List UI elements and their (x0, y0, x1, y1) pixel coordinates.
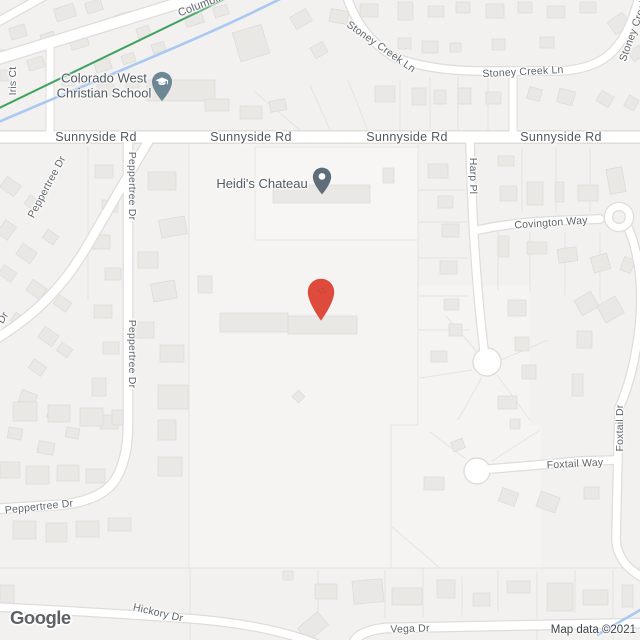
covington-loop (609, 207, 630, 228)
school-pin-icon[interactable] (151, 71, 173, 107)
road-label-iris-ct: Iris Ct (7, 67, 19, 96)
road-label-sunnyside-2: Sunnyside Rd (210, 130, 291, 144)
road-label-peppertree-v2: Peppertree Dr (126, 320, 138, 389)
google-logo-text: Google (10, 607, 71, 628)
road-label-sunnyside-1: Sunnyside Rd (55, 130, 136, 144)
poi-label-chateau[interactable]: Heidi's Chateau (216, 177, 307, 192)
road-label-harp-pl: Harp Pl (467, 158, 479, 194)
poi-label-school[interactable]: Colorado West Christian School (57, 72, 152, 101)
map-canvas[interactable]: Sunnyside Rd Sunnyside Rd Sunnyside Rd S… (0, 0, 640, 640)
foxtail-culdesac (464, 458, 490, 484)
red-map-marker[interactable] (307, 278, 335, 327)
road-label-sunnyside-3: Sunnyside Rd (366, 130, 447, 144)
google-logo[interactable]: Google (7, 605, 79, 636)
road-label-foxtail-dr: Foxtail Dr (614, 405, 626, 452)
poi-school-line1: Colorado West (57, 72, 152, 87)
road-label-sunnyside-4: Sunnyside Rd (520, 130, 601, 144)
place-pin-icon[interactable] (312, 166, 332, 201)
map-attribution: Map data ©2021 (551, 624, 636, 636)
poi-school-line2: Christian School (57, 86, 152, 101)
road-label-peppertree-v1: Peppertree Dr (126, 152, 138, 221)
road-label-vega-dr: Vega Dr (390, 622, 430, 635)
